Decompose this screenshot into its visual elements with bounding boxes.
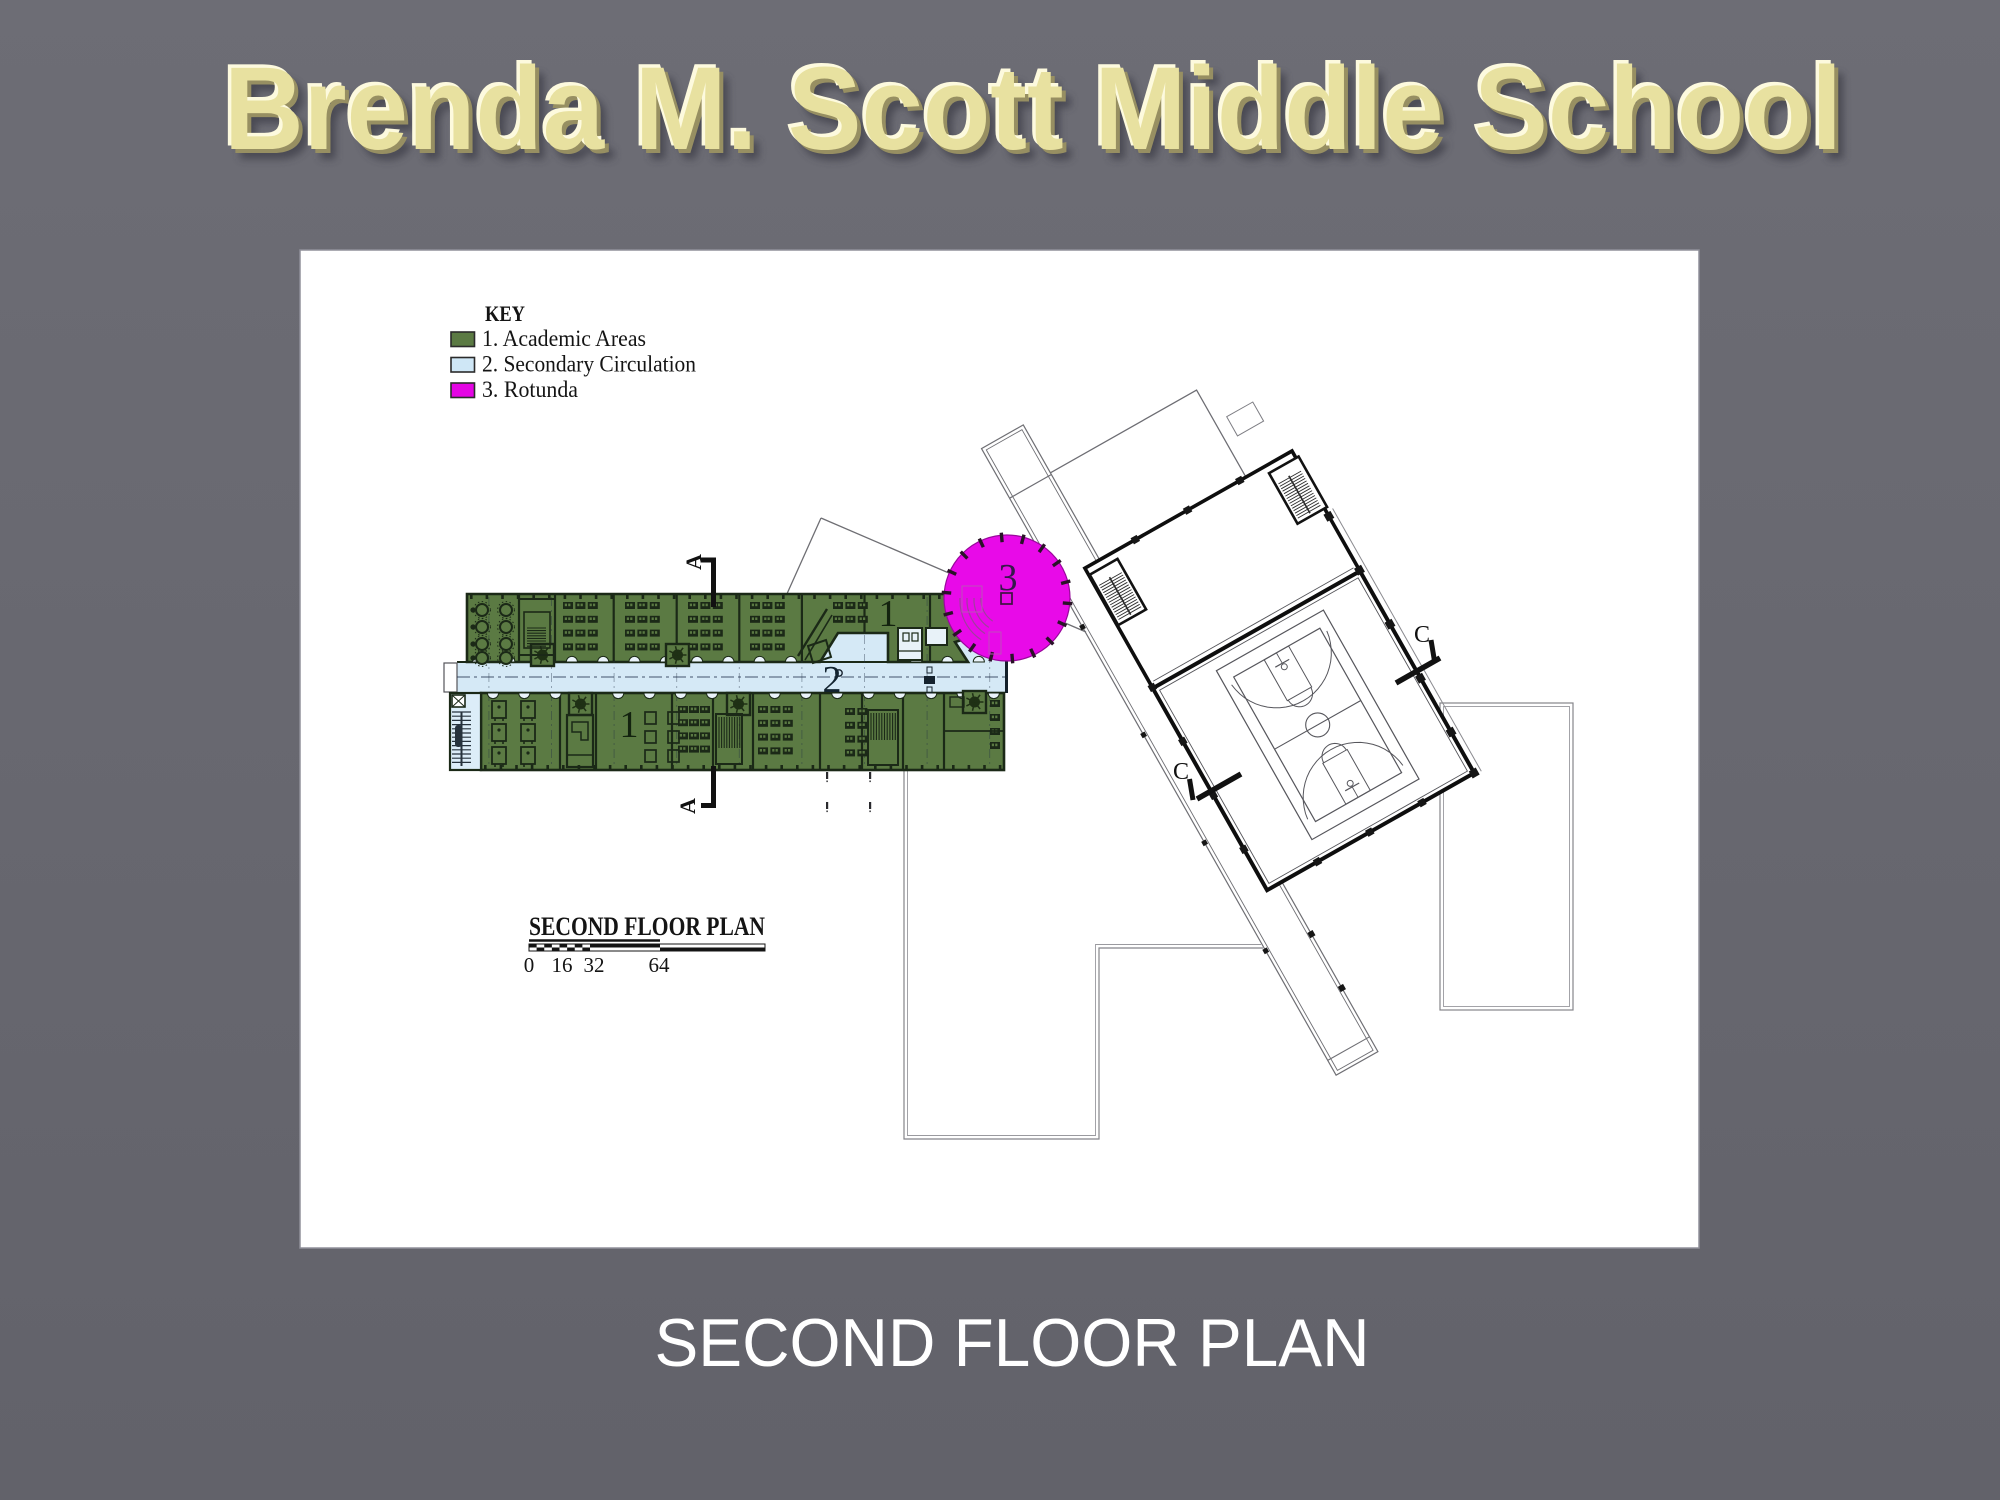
svg-text:2: 2 xyxy=(823,659,842,701)
svg-text:A: A xyxy=(675,798,700,814)
svg-text:C: C xyxy=(1414,622,1430,648)
svg-text:KEY: KEY xyxy=(485,301,525,326)
svg-text:64: 64 xyxy=(649,953,671,977)
svg-text:32: 32 xyxy=(584,953,605,977)
svg-text:SECOND FLOOR PLAN: SECOND FLOOR PLAN xyxy=(529,912,765,941)
svg-text:0: 0 xyxy=(524,953,535,977)
svg-text:Brenda M. Scott Middle School: Brenda M. Scott Middle School xyxy=(224,43,1842,175)
svg-text:A: A xyxy=(681,554,706,570)
svg-text:1: 1 xyxy=(879,593,898,635)
svg-text:16: 16 xyxy=(552,953,573,977)
svg-text:1: 1 xyxy=(620,704,639,746)
svg-text:C: C xyxy=(1173,759,1189,785)
svg-text:3. Rotunda: 3. Rotunda xyxy=(482,377,579,403)
svg-text:SECOND FLOOR PLAN: SECOND FLOOR PLAN xyxy=(655,1305,1370,1381)
svg-text:1. Academic Areas: 1. Academic Areas xyxy=(482,326,646,352)
svg-text:2. Secondary Circulation: 2. Secondary Circulation xyxy=(482,352,696,378)
